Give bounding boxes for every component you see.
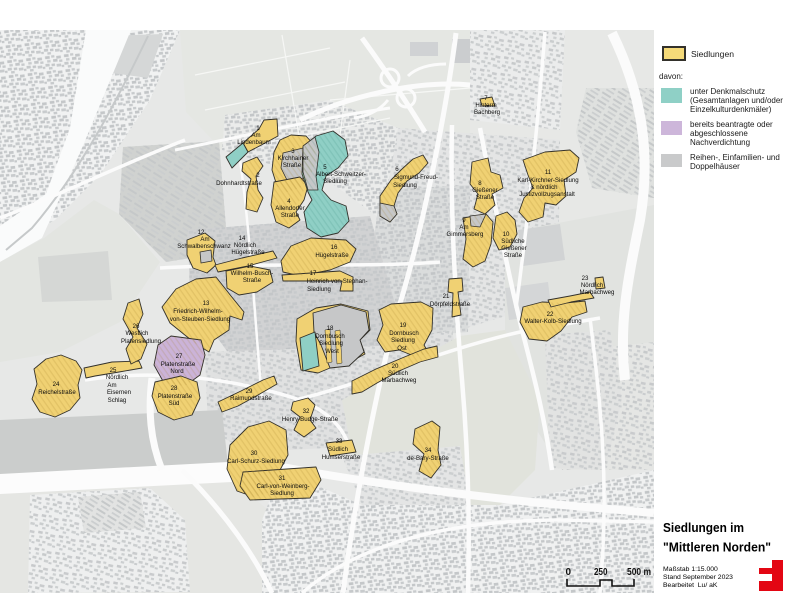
svg-text:21: 21 bbox=[443, 293, 450, 300]
svg-text:Platenstraße: Platenstraße bbox=[158, 393, 193, 400]
svg-text:bereits beantragte oder: bereits beantragte oder bbox=[690, 120, 773, 129]
svg-text:Nachverdichtung: Nachverdichtung bbox=[690, 138, 750, 147]
svg-text:29: 29 bbox=[246, 388, 253, 395]
svg-text:28: 28 bbox=[171, 385, 178, 392]
svg-text:Reihen-, Einfamilien- und: Reihen-, Einfamilien- und bbox=[690, 153, 780, 162]
svg-text:Siedlung: Siedlung bbox=[323, 178, 347, 185]
svg-text:Südliche: Südliche bbox=[501, 238, 525, 245]
svg-text:Straße: Straße bbox=[504, 252, 523, 259]
svg-text:Siedlung: Siedlung bbox=[307, 286, 331, 293]
svg-text:33: 33 bbox=[336, 438, 343, 445]
svg-text:Siedlungen: Siedlungen bbox=[691, 49, 734, 59]
svg-text:Raimundstraße: Raimundstraße bbox=[230, 395, 272, 402]
svg-text:Straße: Straße bbox=[476, 194, 495, 201]
svg-text:Gimmersberg: Gimmersberg bbox=[447, 231, 484, 238]
svg-text:Straße: Straße bbox=[243, 277, 262, 284]
svg-text:26: 26 bbox=[133, 323, 140, 330]
svg-text:Platenstraße: Platenstraße bbox=[161, 361, 196, 368]
svg-text:Hügelstraße: Hügelstraße bbox=[231, 249, 265, 256]
svg-text:Dörpfeldstraße: Dörpfeldstraße bbox=[430, 301, 471, 308]
svg-text:Süd: Süd bbox=[169, 400, 180, 407]
svg-text:Südlich: Südlich bbox=[328, 446, 348, 453]
svg-text:Westlich: Westlich bbox=[126, 330, 149, 337]
svg-text:Marbachweg: Marbachweg bbox=[580, 289, 615, 296]
svg-text:Marbachweg: Marbachweg bbox=[382, 377, 417, 384]
svg-text:17: 17 bbox=[310, 270, 317, 277]
svg-text:16: 16 bbox=[331, 244, 338, 251]
svg-text:34: 34 bbox=[425, 447, 432, 454]
svg-text:& nördlich: & nördlich bbox=[530, 184, 557, 191]
svg-text:10: 10 bbox=[503, 231, 510, 238]
svg-text:Siedlung: Siedlung bbox=[393, 182, 417, 189]
svg-text:0: 0 bbox=[566, 567, 572, 578]
svg-text:Albert-Schweitzer-: Albert-Schweitzer- bbox=[316, 171, 366, 178]
svg-text:Straße: Straße bbox=[281, 212, 300, 219]
svg-text:Nördlich: Nördlich bbox=[234, 242, 256, 249]
svg-text:Siedlung: Siedlung bbox=[391, 337, 415, 344]
svg-text:Am: Am bbox=[107, 382, 116, 389]
svg-text:Karl-Kirchner-Siedlung: Karl-Kirchner-Siedlung bbox=[517, 177, 578, 184]
svg-text:Einzelkulturdenkmäler): Einzelkulturdenkmäler) bbox=[690, 105, 772, 114]
svg-text:22: 22 bbox=[547, 311, 554, 318]
svg-text:Allendorfer: Allendorfer bbox=[275, 205, 304, 212]
svg-text:Hügelstraße: Hügelstraße bbox=[315, 252, 349, 259]
svg-text:Carl-Schurz-Siedlung: Carl-Schurz-Siedlung bbox=[227, 458, 285, 465]
svg-text:Nördlich: Nördlich bbox=[581, 282, 603, 289]
svg-text:Siedlung: Siedlung bbox=[319, 340, 343, 347]
svg-text:27: 27 bbox=[176, 353, 183, 360]
svg-text:30: 30 bbox=[251, 450, 258, 457]
svg-text:Nördlich: Nördlich bbox=[106, 374, 128, 381]
svg-text:Nord: Nord bbox=[170, 368, 183, 375]
svg-text:Eisernen: Eisernen bbox=[107, 389, 131, 396]
svg-text:von-Steuben-Siedlung: von-Steuben-Siedlung bbox=[170, 316, 230, 323]
svg-text:18: 18 bbox=[327, 325, 334, 332]
svg-text:Schwalbenschwanz: Schwalbenschwanz bbox=[177, 243, 231, 250]
svg-text:Südlich: Südlich bbox=[388, 370, 408, 377]
svg-text:West: West bbox=[325, 348, 339, 355]
svg-text:Platensiedlung: Platensiedlung bbox=[121, 338, 161, 345]
svg-text:32: 32 bbox=[303, 408, 310, 415]
svg-text:250: 250 bbox=[594, 567, 608, 578]
svg-text:Kirchhainer: Kirchhainer bbox=[278, 155, 309, 162]
svg-text:25: 25 bbox=[110, 367, 117, 374]
svg-text:Justizvollzugsanstalt: Justizvollzugsanstalt bbox=[519, 191, 575, 198]
svg-text:11: 11 bbox=[545, 169, 552, 176]
svg-text:Schlag: Schlag bbox=[108, 397, 127, 404]
svg-text:abgeschlossene: abgeschlossene bbox=[690, 129, 748, 138]
svg-text:Bearbeitet Lu/ aK: Bearbeitet Lu/ aK bbox=[663, 582, 718, 589]
svg-text:Ost: Ost bbox=[397, 345, 407, 352]
svg-text:Hinterm: Hinterm bbox=[475, 102, 496, 109]
svg-text:20: 20 bbox=[392, 363, 399, 370]
svg-text:Gießener: Gießener bbox=[501, 245, 526, 252]
svg-text:Am: Am bbox=[459, 224, 468, 231]
svg-text:12: 12 bbox=[198, 229, 205, 236]
svg-text:Dornbusch: Dornbusch bbox=[315, 333, 344, 340]
svg-text:Maßstab 1:15.000: Maßstab 1:15.000 bbox=[663, 566, 718, 573]
svg-text:Reichelstraße: Reichelstraße bbox=[38, 389, 76, 396]
svg-text:de-Bary-Straße: de-Bary-Straße bbox=[407, 455, 449, 462]
svg-text:Henry-Budge-Straße: Henry-Budge-Straße bbox=[282, 416, 339, 423]
svg-text:Straße: Straße bbox=[283, 162, 302, 169]
svg-text:19: 19 bbox=[400, 322, 407, 329]
svg-text:15: 15 bbox=[247, 263, 254, 270]
svg-text:(Gesamtanlagen und/oder: (Gesamtanlagen und/oder bbox=[690, 96, 783, 105]
svg-text:davon:: davon: bbox=[659, 72, 683, 81]
svg-text:23: 23 bbox=[582, 275, 589, 282]
svg-text:Heinrich-von-Stephan-: Heinrich-von-Stephan- bbox=[307, 278, 368, 285]
svg-text:Siedlung: Siedlung bbox=[270, 490, 294, 497]
svg-text:Walter-Kolb-Siedlung: Walter-Kolb-Siedlung bbox=[524, 318, 581, 325]
svg-text:Stand September 2023: Stand September 2023 bbox=[663, 574, 733, 581]
svg-text:Dornbusch: Dornbusch bbox=[389, 330, 418, 337]
svg-text:500 m: 500 m bbox=[627, 567, 651, 578]
svg-text:unter Denkmalschutz: unter Denkmalschutz bbox=[690, 87, 765, 96]
svg-text:Bachberg: Bachberg bbox=[474, 109, 500, 116]
svg-text:Siedlungen im: Siedlungen im bbox=[663, 521, 744, 535]
svg-text:Friedrich-Wilhelm-: Friedrich-Wilhelm- bbox=[173, 308, 222, 315]
svg-text:"Mittleren Norden": "Mittleren Norden" bbox=[663, 541, 771, 555]
svg-text:Am: Am bbox=[200, 236, 209, 243]
svg-text:Wilhelm-Busch-: Wilhelm-Busch- bbox=[231, 270, 274, 277]
svg-text:14: 14 bbox=[239, 235, 246, 242]
svg-text:Doppelhäuser: Doppelhäuser bbox=[690, 162, 740, 171]
svg-text:Am: Am bbox=[251, 132, 260, 139]
svg-text:Dohnhardtstraße: Dohnhardtstraße bbox=[216, 180, 262, 187]
svg-text:24: 24 bbox=[53, 381, 60, 388]
svg-text:Carl-von-Weinberg-: Carl-von-Weinberg- bbox=[256, 483, 309, 490]
svg-text:Sigmund-Freud-: Sigmund-Freud- bbox=[394, 174, 438, 181]
svg-text:Gießener: Gießener bbox=[472, 187, 497, 194]
svg-text:31: 31 bbox=[279, 475, 286, 482]
svg-text:Lindenbaum: Lindenbaum bbox=[237, 139, 271, 146]
svg-text:13: 13 bbox=[203, 300, 210, 307]
svg-text:Humserstraße: Humserstraße bbox=[322, 454, 361, 461]
